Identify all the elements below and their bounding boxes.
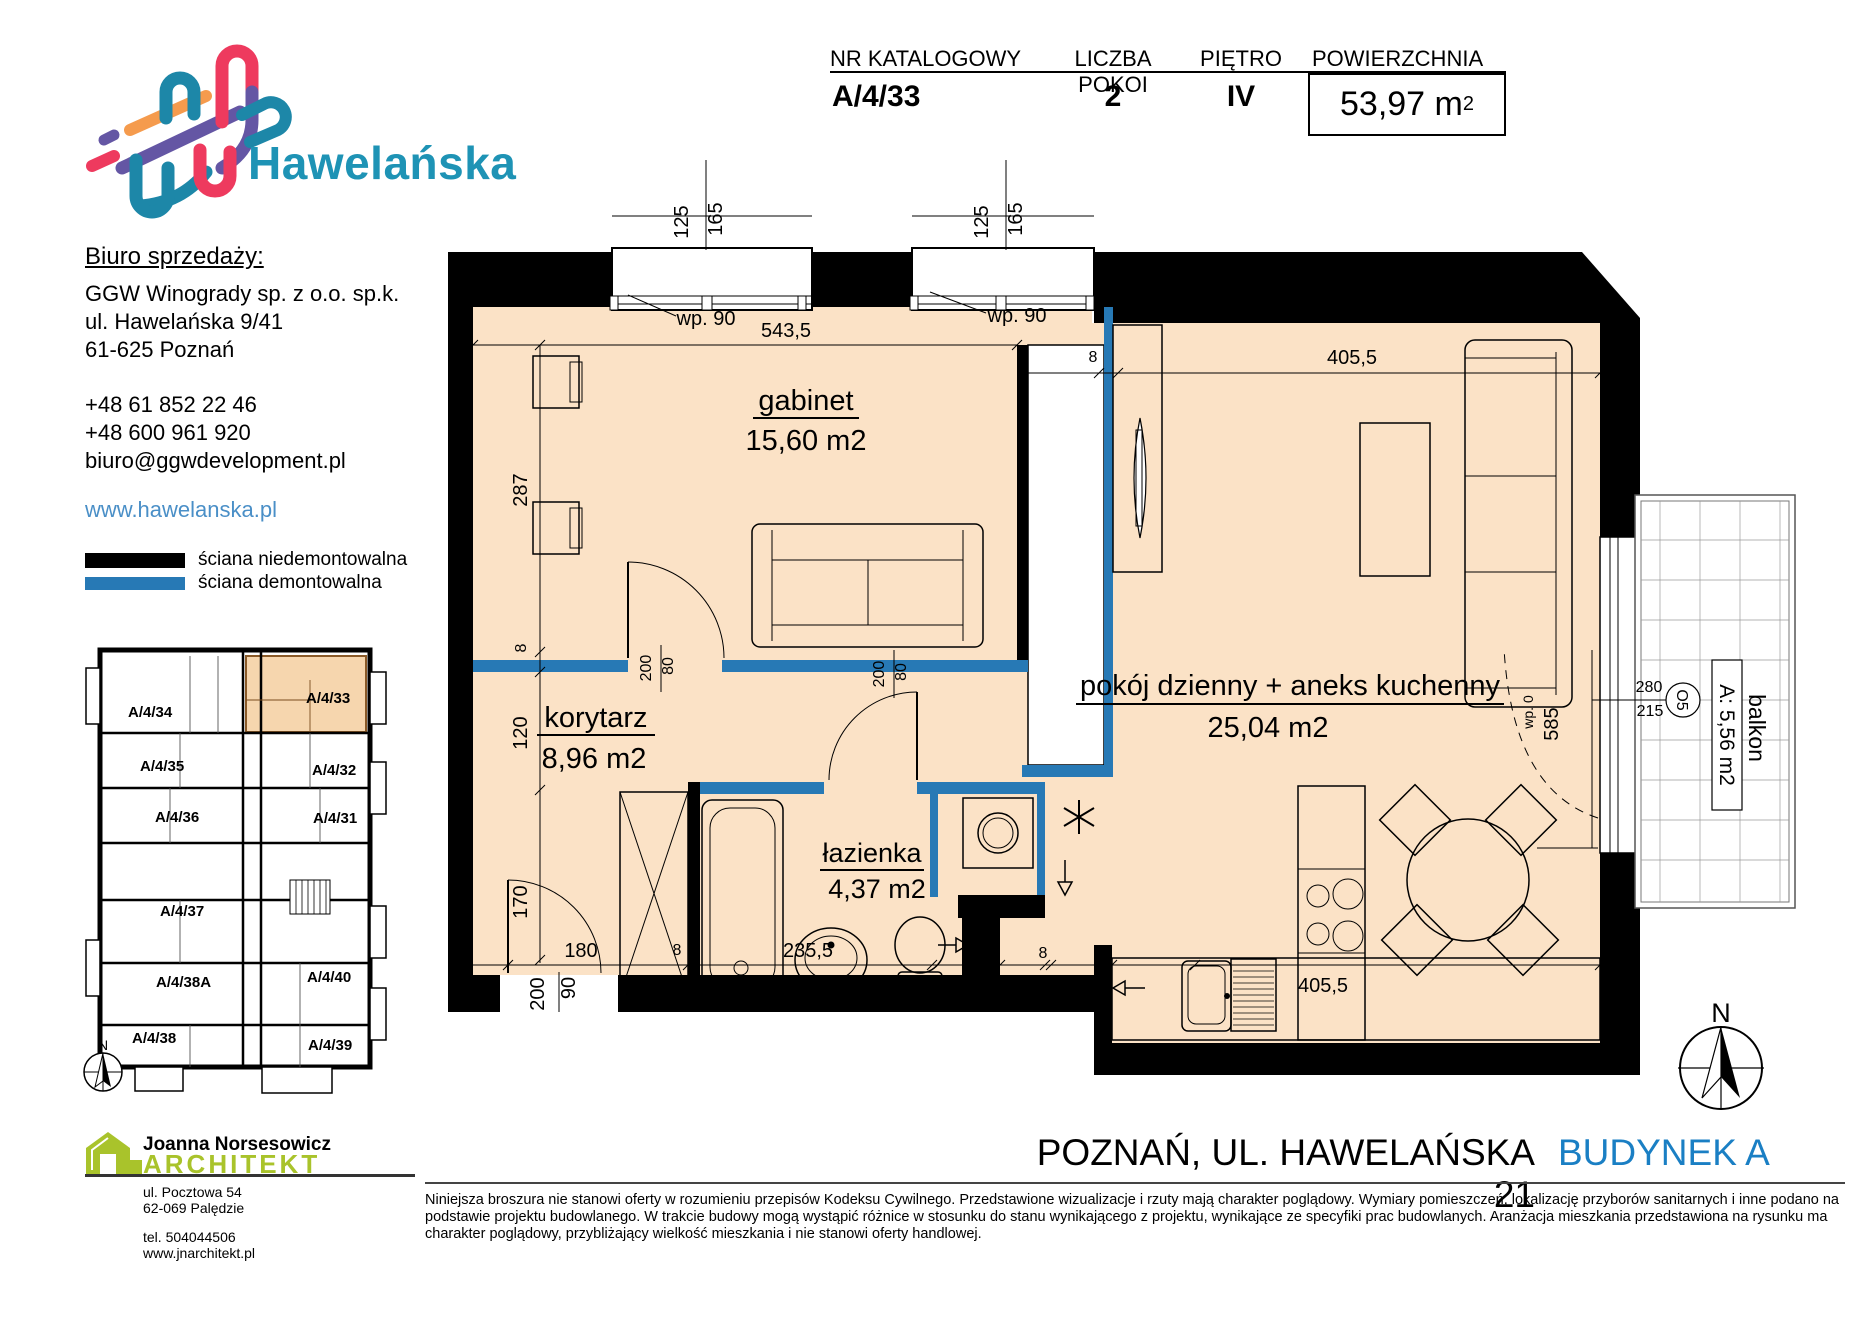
sales-office-company: GGW Winogrady sp. z o.o. sp.k. bbox=[85, 280, 399, 308]
svg-text:N: N bbox=[98, 1037, 108, 1053]
unit-label: A/4/39 bbox=[308, 1037, 352, 1054]
floor-value: IV bbox=[1195, 80, 1287, 114]
architect-logo-icon bbox=[86, 1132, 142, 1174]
unit-label: A/4/38 bbox=[132, 1030, 176, 1047]
svg-text:wp. 90: wp. 90 bbox=[987, 305, 1047, 327]
svg-text:wp. 90: wp. 90 bbox=[676, 308, 736, 330]
legend-swatch-solid-wall bbox=[85, 553, 185, 568]
svg-text:60: 60 bbox=[1067, 973, 1089, 995]
svg-text:280: 280 bbox=[1636, 679, 1663, 696]
svg-text:wp. 0: wp. 0 bbox=[1520, 695, 1536, 730]
svg-text:8: 8 bbox=[513, 643, 530, 652]
compass-rose: N bbox=[1678, 998, 1764, 1109]
building-label: BUDYNEK A bbox=[1558, 1132, 1770, 1174]
svg-text:80: 80 bbox=[660, 657, 677, 675]
area-value: 53,97 m bbox=[1340, 85, 1463, 124]
room-label-balkon: balkon bbox=[1744, 694, 1770, 762]
svg-text:125: 125 bbox=[671, 205, 693, 238]
unit-label: A/4/40 bbox=[307, 969, 351, 986]
architect-divider bbox=[85, 1174, 415, 1177]
unit-label: A/4/38A bbox=[156, 974, 211, 991]
sales-office-phone-1: +48 61 852 22 46 bbox=[85, 391, 257, 419]
unit-label-highlighted: A/4/33 bbox=[306, 690, 350, 707]
svg-text:287: 287 bbox=[510, 473, 532, 506]
unit-label: A/4/37 bbox=[160, 903, 204, 920]
area-value-box: 53,97 m2 bbox=[1308, 73, 1506, 136]
mini-plan: A/4/34 A/4/33 A/4/35 A/4/32 A/4/36 A/4/3… bbox=[84, 650, 386, 1093]
mini-plan-stairs bbox=[290, 880, 330, 914]
sales-office-website-link[interactable]: www.hawelanska.pl bbox=[85, 496, 277, 524]
sales-office-street: ul. Hawelańska 9/41 bbox=[85, 308, 283, 336]
rooms-count-value: 2 bbox=[1040, 80, 1186, 114]
area-superscript: 2 bbox=[1463, 93, 1474, 116]
svg-text:543,5: 543,5 bbox=[761, 320, 811, 342]
room-label-living: pokój dzienny + aneks kuchenny bbox=[1080, 670, 1500, 702]
unit-label: A/4/36 bbox=[155, 809, 199, 826]
balcony-tag: O5 bbox=[1673, 689, 1690, 710]
architect-website-link[interactable]: www.jnarchitekt.pl bbox=[143, 1245, 255, 1261]
svg-text:200: 200 bbox=[527, 977, 549, 1010]
svg-text:8: 8 bbox=[1089, 349, 1098, 366]
svg-text:90: 90 bbox=[558, 977, 580, 999]
svg-text:8: 8 bbox=[673, 942, 682, 959]
svg-text:200: 200 bbox=[871, 661, 888, 688]
brand-wordmark: Hawelańska bbox=[248, 136, 516, 190]
svg-text:200: 200 bbox=[638, 655, 655, 682]
svg-text:125: 125 bbox=[971, 205, 993, 238]
sales-office-phone-2: +48 600 961 920 bbox=[85, 419, 251, 447]
svg-text:405,5: 405,5 bbox=[1327, 347, 1377, 369]
svg-text:8,96 m2: 8,96 m2 bbox=[542, 743, 647, 775]
svg-text:120: 120 bbox=[510, 716, 532, 749]
svg-text:25,04 m2: 25,04 m2 bbox=[1208, 712, 1329, 744]
svg-text:15,60 m2: 15,60 m2 bbox=[746, 425, 867, 457]
footer-divider bbox=[425, 1182, 1845, 1184]
svg-text:180: 180 bbox=[564, 940, 597, 962]
room-label-lazienka: łazienka bbox=[822, 838, 922, 868]
unit-label: A/4/32 bbox=[312, 762, 356, 779]
legend-label-solid-wall: ściana niedemontowalna bbox=[198, 549, 407, 571]
svg-text:N: N bbox=[1711, 998, 1731, 1028]
svg-text:585: 585 bbox=[1541, 707, 1563, 740]
svg-text:A: 5,56 m2: A: 5,56 m2 bbox=[1715, 684, 1738, 786]
svg-text:165: 165 bbox=[705, 202, 727, 235]
sales-office-city: 61-625 Poznań bbox=[85, 336, 234, 364]
svg-text:165: 165 bbox=[1005, 202, 1027, 235]
shaft-column bbox=[1028, 345, 1104, 765]
unit-label: A/4/31 bbox=[313, 810, 357, 827]
room-label-korytarz: korytarz bbox=[544, 702, 647, 734]
unit-label: A/4/34 bbox=[128, 704, 173, 721]
sales-office-email[interactable]: biuro@ggwdevelopment.pl bbox=[85, 447, 346, 475]
architect-city: 62-069 Palędzie bbox=[143, 1200, 244, 1216]
legend-swatch-demountable-wall bbox=[85, 577, 185, 590]
architect-street: ul. Pocztowa 54 bbox=[143, 1184, 242, 1200]
svg-text:4,37 m2: 4,37 m2 bbox=[828, 874, 926, 904]
svg-text:8: 8 bbox=[1039, 945, 1048, 962]
floor-plan-drawing: 200 90 200 80 200 80 585 wp. 0 bbox=[0, 0, 1871, 1323]
sales-office-heading: Biuro sprzedaży: bbox=[85, 243, 264, 271]
svg-text:405,5: 405,5 bbox=[1298, 975, 1348, 997]
header-col-catalog: NR KATALOGOWY bbox=[830, 46, 1021, 72]
architect-phone: tel. 504044506 bbox=[143, 1229, 236, 1245]
legal-disclaimer: Niniejsza broszura nie stanowi oferty w … bbox=[425, 1192, 1853, 1243]
room-label-gabinet: gabinet bbox=[758, 385, 853, 417]
brochure-page: 200 90 200 80 200 80 585 wp. 0 bbox=[0, 0, 1871, 1323]
svg-text:80: 80 bbox=[893, 663, 910, 681]
svg-text:170: 170 bbox=[510, 885, 532, 918]
catalog-number-value: A/4/33 bbox=[832, 80, 920, 114]
svg-text:215: 215 bbox=[1637, 703, 1664, 720]
unit-label: A/4/35 bbox=[140, 758, 184, 775]
header-col-area: POWIERZCHNIA bbox=[1312, 46, 1472, 72]
window-right bbox=[910, 216, 1094, 310]
svg-text:60: 60 bbox=[990, 973, 1012, 995]
legend-label-demountable-wall: ściana demontowalna bbox=[198, 572, 382, 594]
svg-text:235,5: 235,5 bbox=[783, 940, 833, 962]
header-col-floor: PIĘTRO bbox=[1195, 46, 1287, 72]
